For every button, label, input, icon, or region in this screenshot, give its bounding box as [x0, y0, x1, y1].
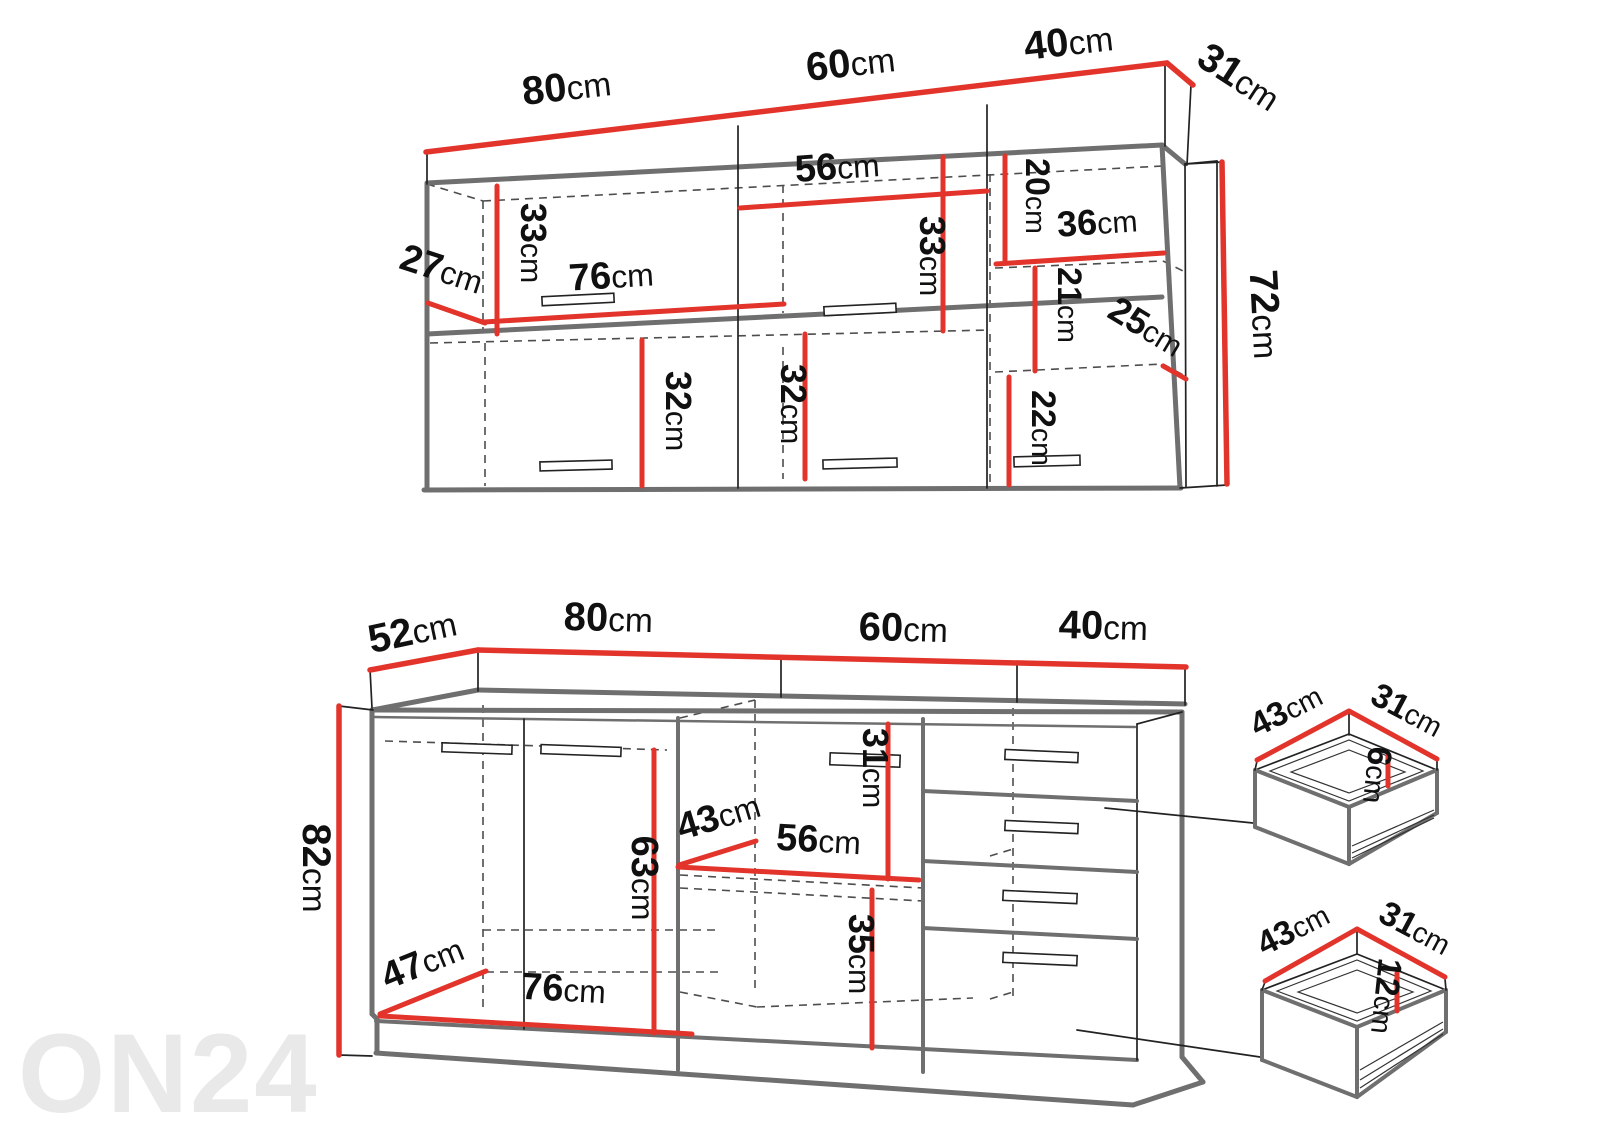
dim-wall-lower-left-height: 32cm	[658, 371, 699, 451]
dim-wall-right-middle-height: 21cm	[1050, 267, 1088, 343]
dim-base-lower-compartment-height: 35cm	[841, 914, 882, 994]
watermark-logo: ON24	[18, 1011, 319, 1136]
dim-wall-right-top-height: 20cm	[1018, 158, 1056, 234]
dim-wall-upper-left-height: 33cm	[513, 203, 554, 283]
dim-base-height: 82cm	[294, 823, 338, 912]
dim-wall-shelf-width: 76cm	[568, 252, 655, 299]
dimension-diagram-page: ON24	[0, 0, 1600, 1145]
dim-wall-right-bottom-height: 22cm	[1024, 390, 1062, 466]
dim-wall-upper-middle-height: 33cm	[912, 216, 953, 296]
dim-base-upper-compartment-height: 31cm	[855, 728, 896, 808]
dim-base-shelf-width: 56cm	[775, 817, 862, 863]
dim-wall-lower-middle-height: 32cm	[773, 364, 814, 444]
dim-base-door-height: 63cm	[623, 836, 665, 921]
dim-wall-upper-middle-width: 56cm	[793, 143, 881, 191]
kitchen-dimensions-diagram: ON24	[0, 0, 1600, 1145]
dim-base-floor-width: 76cm	[520, 966, 607, 1012]
